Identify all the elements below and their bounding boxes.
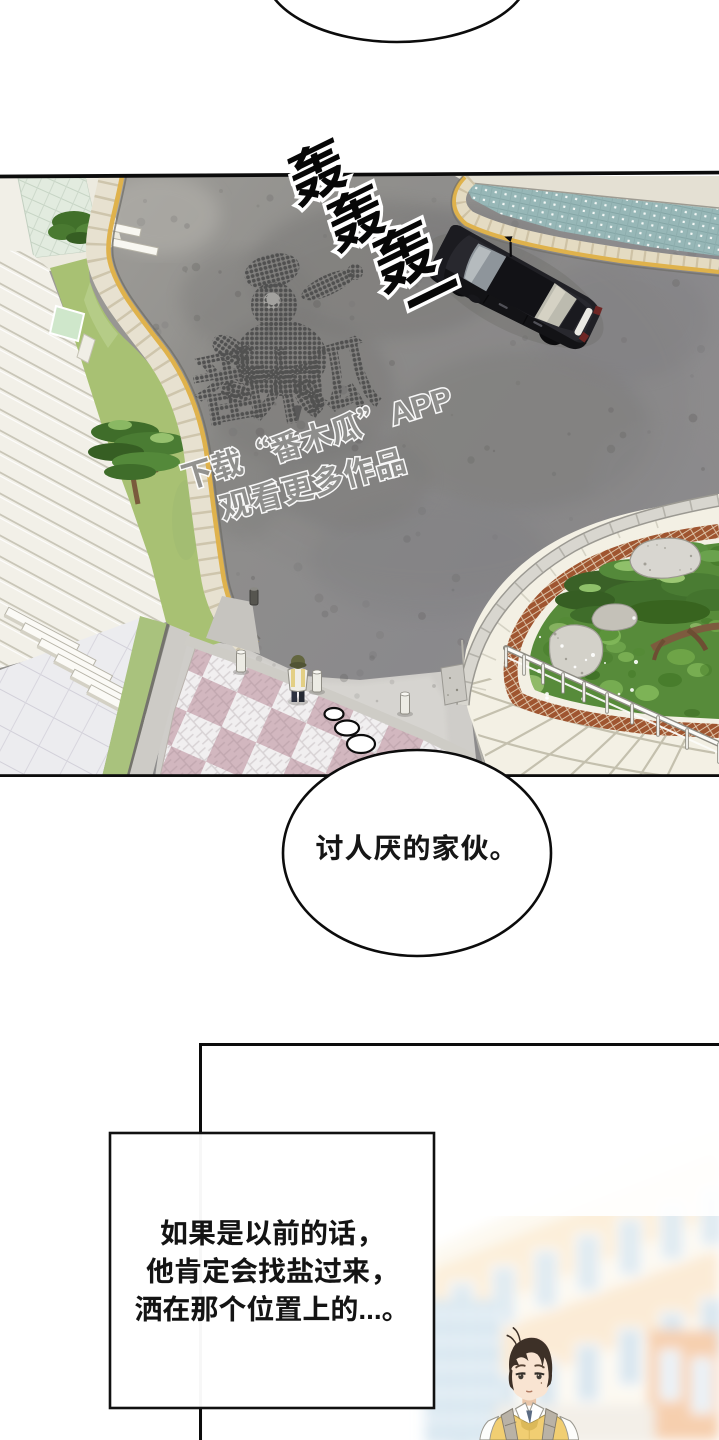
svg-text:他肯定会找盐过来，: 他肯定会找盐过来， xyxy=(146,1250,398,1290)
svg-text:如果是以前的话，: 如果是以前的话， xyxy=(160,1212,384,1252)
svg-text:洒在那个位置上的...。: 洒在那个位置上的...。 xyxy=(134,1288,409,1328)
svg-text:讨人厌的家伙。: 讨人厌的家伙。 xyxy=(315,827,518,867)
